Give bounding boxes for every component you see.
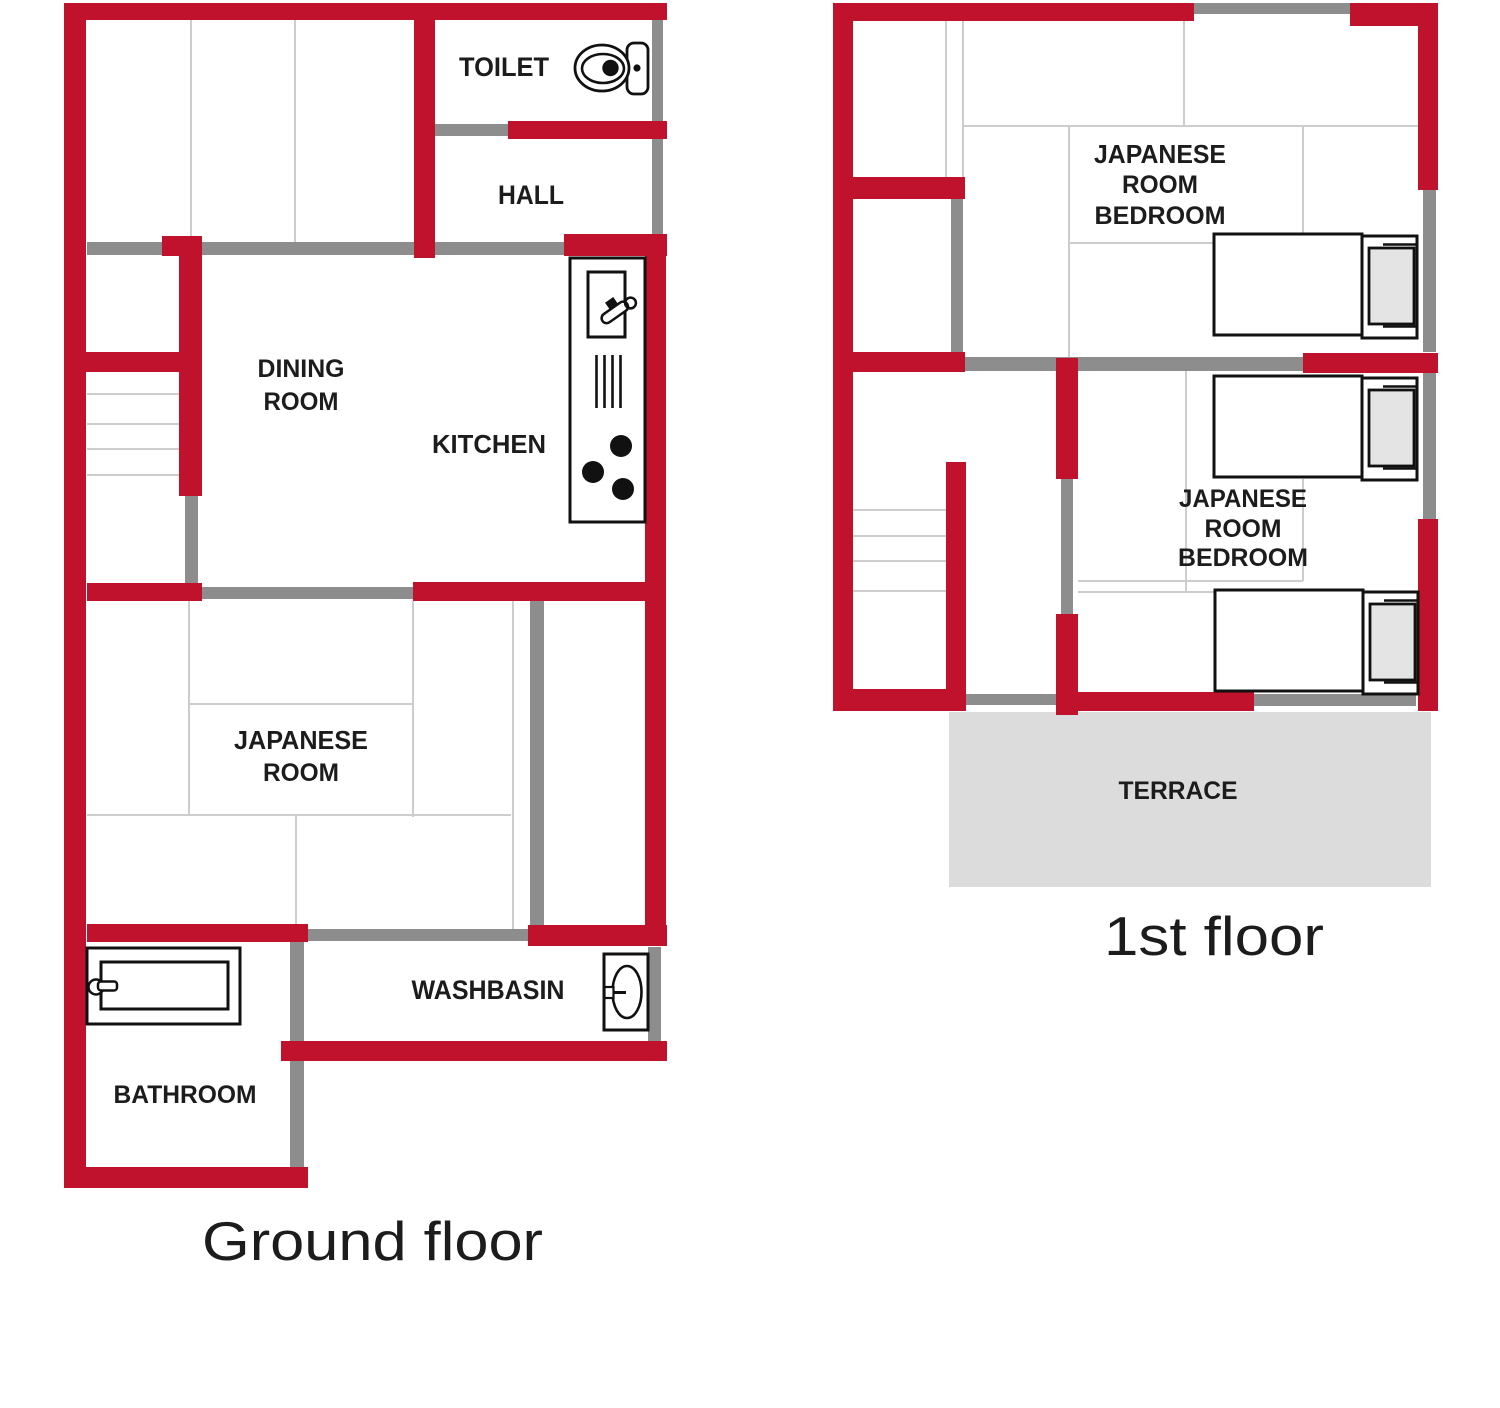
svg-text:BEDROOM: BEDROOM: [1178, 544, 1308, 572]
svg-text:KITCHEN: KITCHEN: [432, 429, 546, 459]
svg-text:1st floor: 1st floor: [1104, 905, 1324, 967]
svg-text:TERRACE: TERRACE: [1119, 777, 1238, 805]
svg-text:ROOM: ROOM: [264, 388, 339, 416]
svg-text:ROOM: ROOM: [263, 759, 339, 787]
svg-text:HALL: HALL: [498, 180, 564, 210]
svg-text:JAPANESE: JAPANESE: [1179, 485, 1307, 513]
svg-text:Ground floor: Ground floor: [202, 1210, 543, 1272]
svg-text:DINING: DINING: [258, 355, 345, 383]
svg-text:ROOM: ROOM: [1205, 515, 1282, 543]
svg-text:BATHROOM: BATHROOM: [114, 1081, 257, 1109]
svg-text:JAPANESE: JAPANESE: [1094, 139, 1226, 169]
svg-text:TOILET: TOILET: [459, 52, 549, 82]
svg-text:ROOM: ROOM: [1122, 171, 1198, 199]
svg-text:WASHBASIN: WASHBASIN: [412, 975, 565, 1005]
svg-text:JAPANESE: JAPANESE: [234, 725, 368, 755]
svg-text:BEDROOM: BEDROOM: [1095, 202, 1226, 230]
